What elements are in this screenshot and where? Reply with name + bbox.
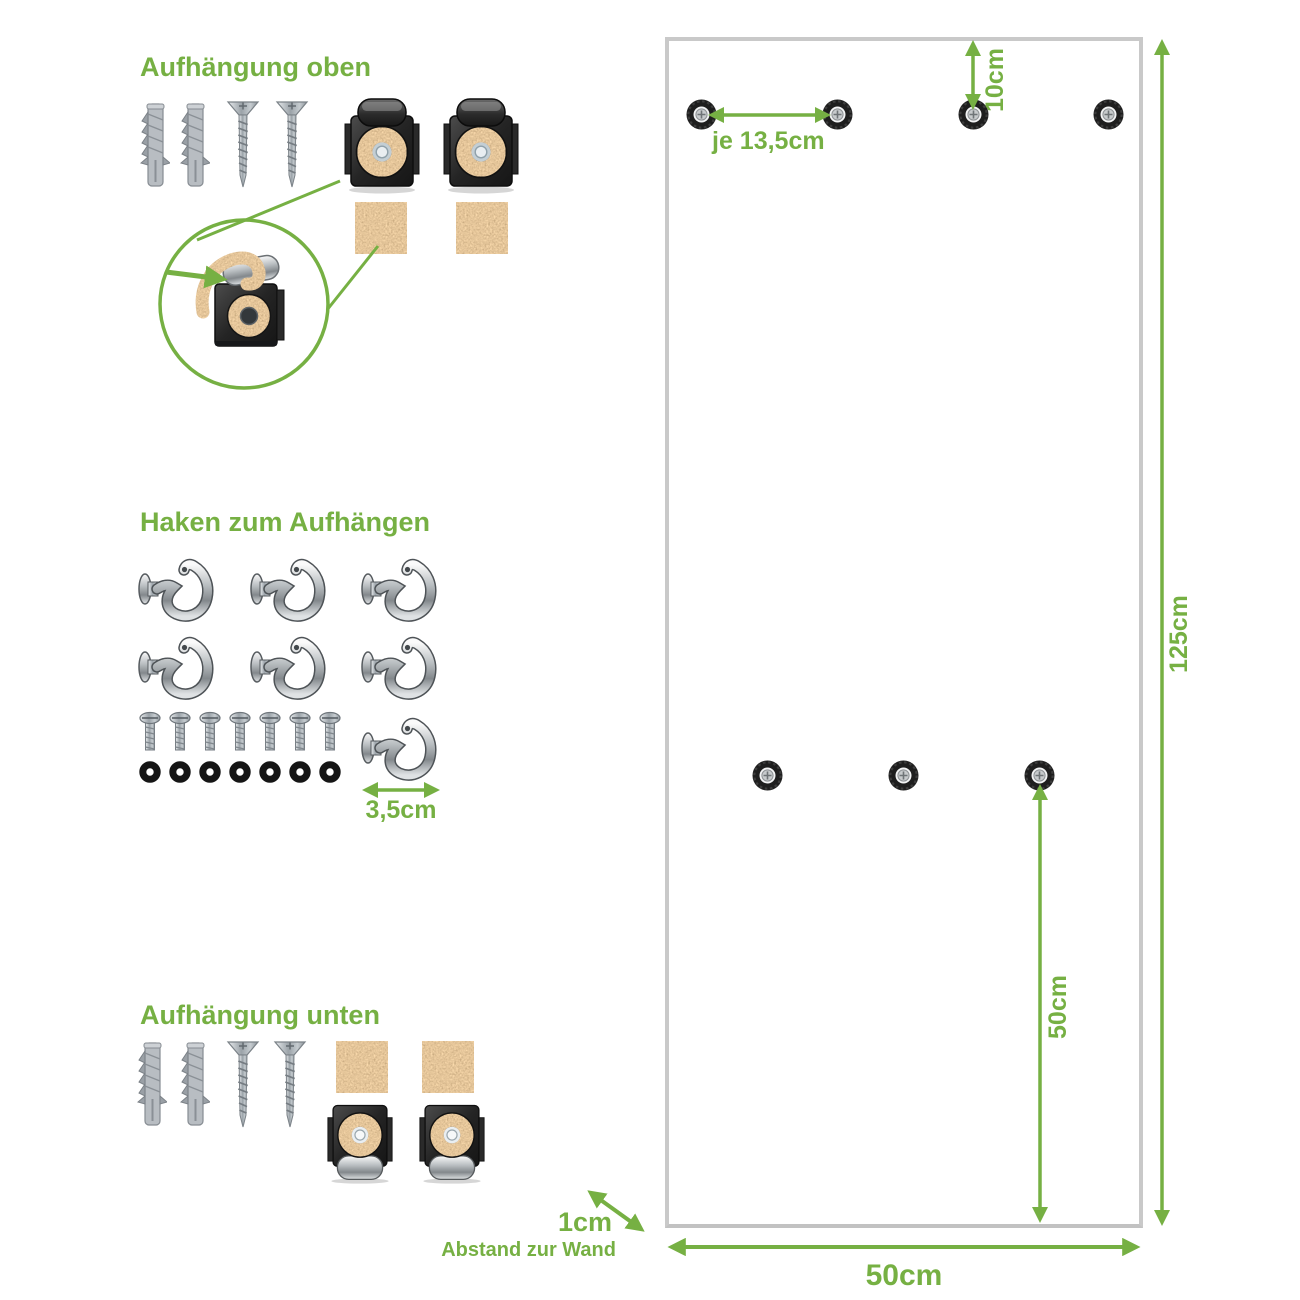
wall-plug-icon	[137, 1041, 167, 1127]
screw-hole-icon	[822, 99, 853, 130]
detail-clip-illustration	[193, 248, 293, 360]
mounting-instructions-diagram: Aufhängung oben Haken zum Aufhängen	[0, 0, 1300, 1300]
dimension-arrow-wall-distance	[591, 1193, 641, 1229]
dimension-label-width: 50cm	[866, 1259, 943, 1292]
bolt-icon	[139, 711, 161, 753]
dimension-label-height: 125cm	[1165, 595, 1193, 673]
detail-connector-line	[197, 181, 340, 240]
detail-connector-line	[327, 246, 378, 310]
bolt-icon	[289, 711, 311, 753]
panel-outline	[665, 37, 1143, 1228]
wall-plug-icon	[140, 102, 170, 188]
bolt-icon	[169, 711, 191, 753]
hook-icon	[137, 630, 223, 702]
mounting-clip-icon	[327, 1100, 393, 1184]
hook-icon	[360, 711, 446, 783]
screw-icon	[273, 1039, 307, 1131]
bolt-icon	[259, 711, 281, 753]
screw-icon	[226, 99, 260, 191]
screw-hole-icon	[686, 99, 717, 130]
section-title-bottom-mount: Aufhängung unten	[140, 1002, 380, 1029]
cork-pad-icon	[456, 202, 508, 254]
section-title-hooks: Haken zum Aufhängen	[140, 509, 430, 536]
hook-icon	[360, 552, 446, 624]
screw-hole-icon	[1093, 99, 1124, 130]
hook-icon	[249, 630, 335, 702]
section-title-top-mount: Aufhängung oben	[140, 54, 371, 81]
dimension-label-hook-width: 3,5cm	[366, 796, 437, 824]
screw-hole-icon	[958, 99, 989, 130]
screw-icon	[226, 1039, 260, 1131]
hook-icon	[360, 630, 446, 702]
washer-icon	[199, 761, 221, 783]
screw-hole-icon	[752, 760, 783, 791]
washer-icon	[229, 761, 251, 783]
wall-plug-icon	[180, 102, 210, 188]
hook-icon	[249, 552, 335, 624]
screw-hole-icon	[1024, 760, 1055, 791]
mounting-clip-icon	[344, 98, 420, 194]
bolt-icon	[199, 711, 221, 753]
screw-icon	[275, 99, 309, 191]
cork-pad-icon	[336, 1041, 388, 1093]
dimension-caption-wall-distance: Abstand zur Wand	[441, 1239, 616, 1261]
washer-icon	[169, 761, 191, 783]
washer-icon	[139, 761, 161, 783]
mounting-clip-icon	[443, 98, 519, 194]
washer-icon	[289, 761, 311, 783]
screw-hole-icon	[888, 760, 919, 791]
cork-pad-icon	[422, 1041, 474, 1093]
hook-icon	[137, 552, 223, 624]
washer-icon	[319, 761, 341, 783]
bolt-icon	[319, 711, 341, 753]
cork-pad-icon	[355, 202, 407, 254]
mounting-clip-icon	[419, 1100, 485, 1184]
bolt-icon	[229, 711, 251, 753]
washer-icon	[259, 761, 281, 783]
wall-plug-icon	[180, 1041, 210, 1127]
dimension-label-wall-distance: 1cm	[558, 1207, 612, 1237]
